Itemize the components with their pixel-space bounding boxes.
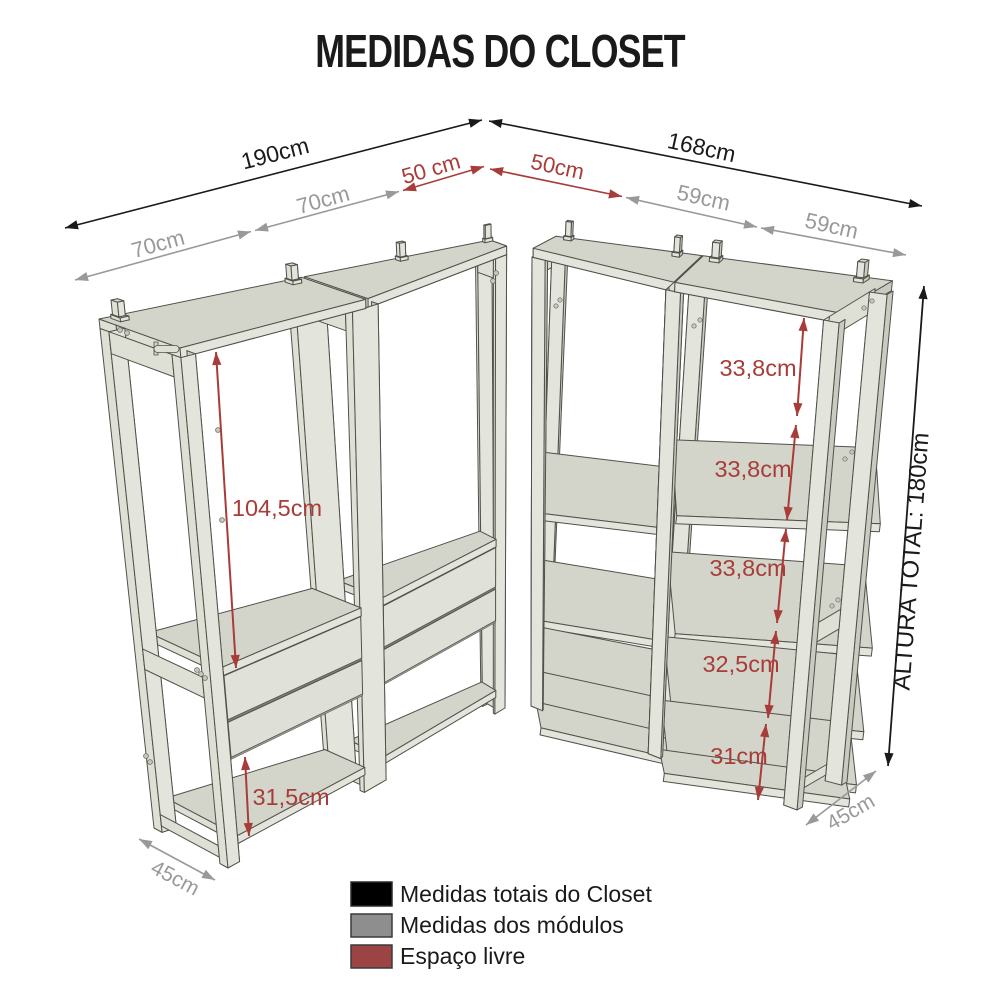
svg-text:Medidas totais do Closet: Medidas totais do Closet: [400, 881, 652, 907]
svg-text:59cm: 59cm: [803, 208, 861, 244]
svg-text:70cm: 70cm: [294, 181, 353, 219]
svg-text:168cm: 168cm: [665, 127, 738, 167]
svg-text:32,5cm: 32,5cm: [702, 651, 779, 677]
svg-text:104,5cm: 104,5cm: [232, 495, 322, 521]
svg-text:45cm: 45cm: [147, 856, 203, 900]
svg-text:ALTURA TOTAL: 180cm: ALTURA TOTAL: 180cm: [888, 432, 934, 692]
svg-text:33,8cm: 33,8cm: [719, 355, 796, 381]
svg-text:33,8cm: 33,8cm: [709, 555, 786, 581]
svg-text:190cm: 190cm: [238, 132, 311, 174]
svg-text:33,8cm: 33,8cm: [714, 456, 791, 482]
svg-text:Espaço livre: Espaço livre: [400, 943, 525, 969]
svg-text:31,5cm: 31,5cm: [252, 784, 329, 810]
svg-text:31cm: 31cm: [710, 743, 767, 769]
svg-text:Medidas dos módulos: Medidas dos módulos: [400, 912, 624, 938]
